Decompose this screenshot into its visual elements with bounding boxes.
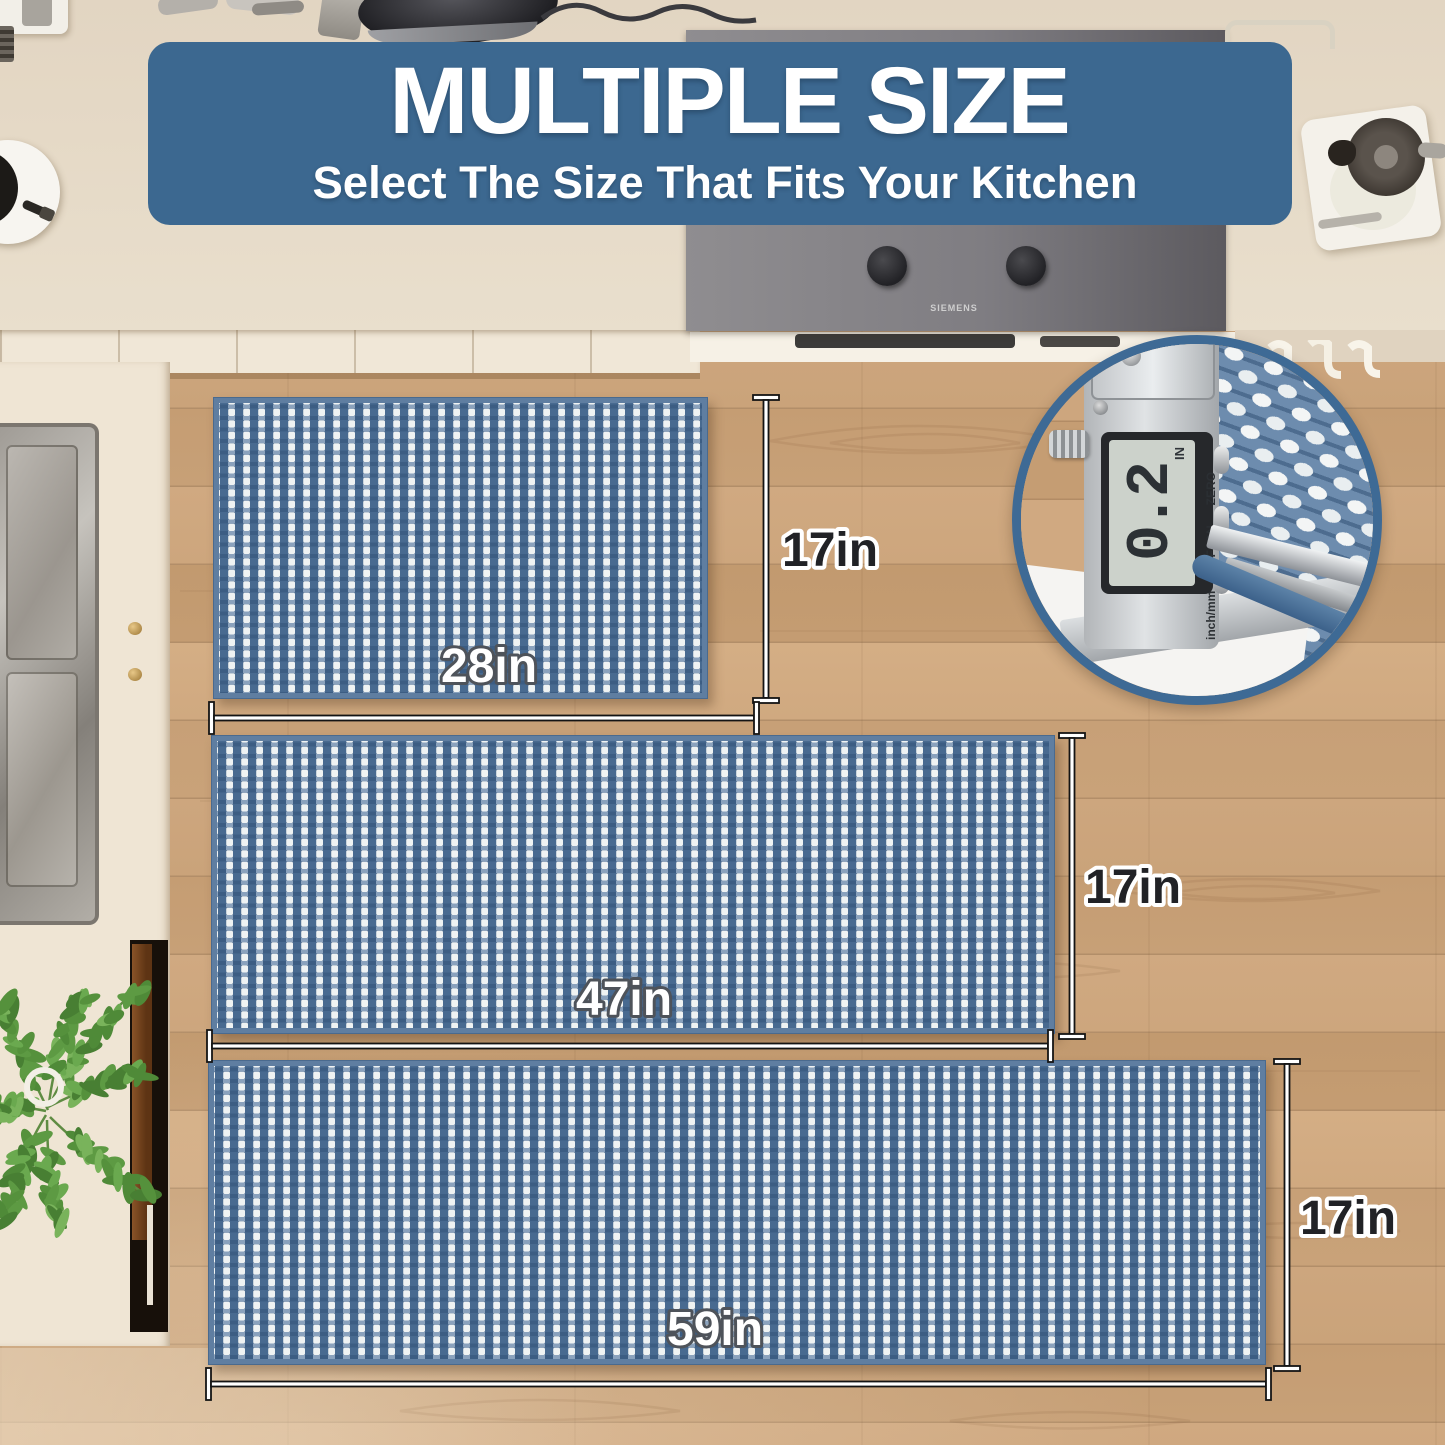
svg-text:47in: 47in [576,973,672,1026]
svg-text:28in: 28in [441,640,537,693]
svg-text:59in: 59in [667,1303,763,1356]
svg-text:17in: 17in [1300,1192,1396,1245]
svg-text:17in: 17in [1085,861,1181,914]
svg-text:17in: 17in [782,524,878,577]
